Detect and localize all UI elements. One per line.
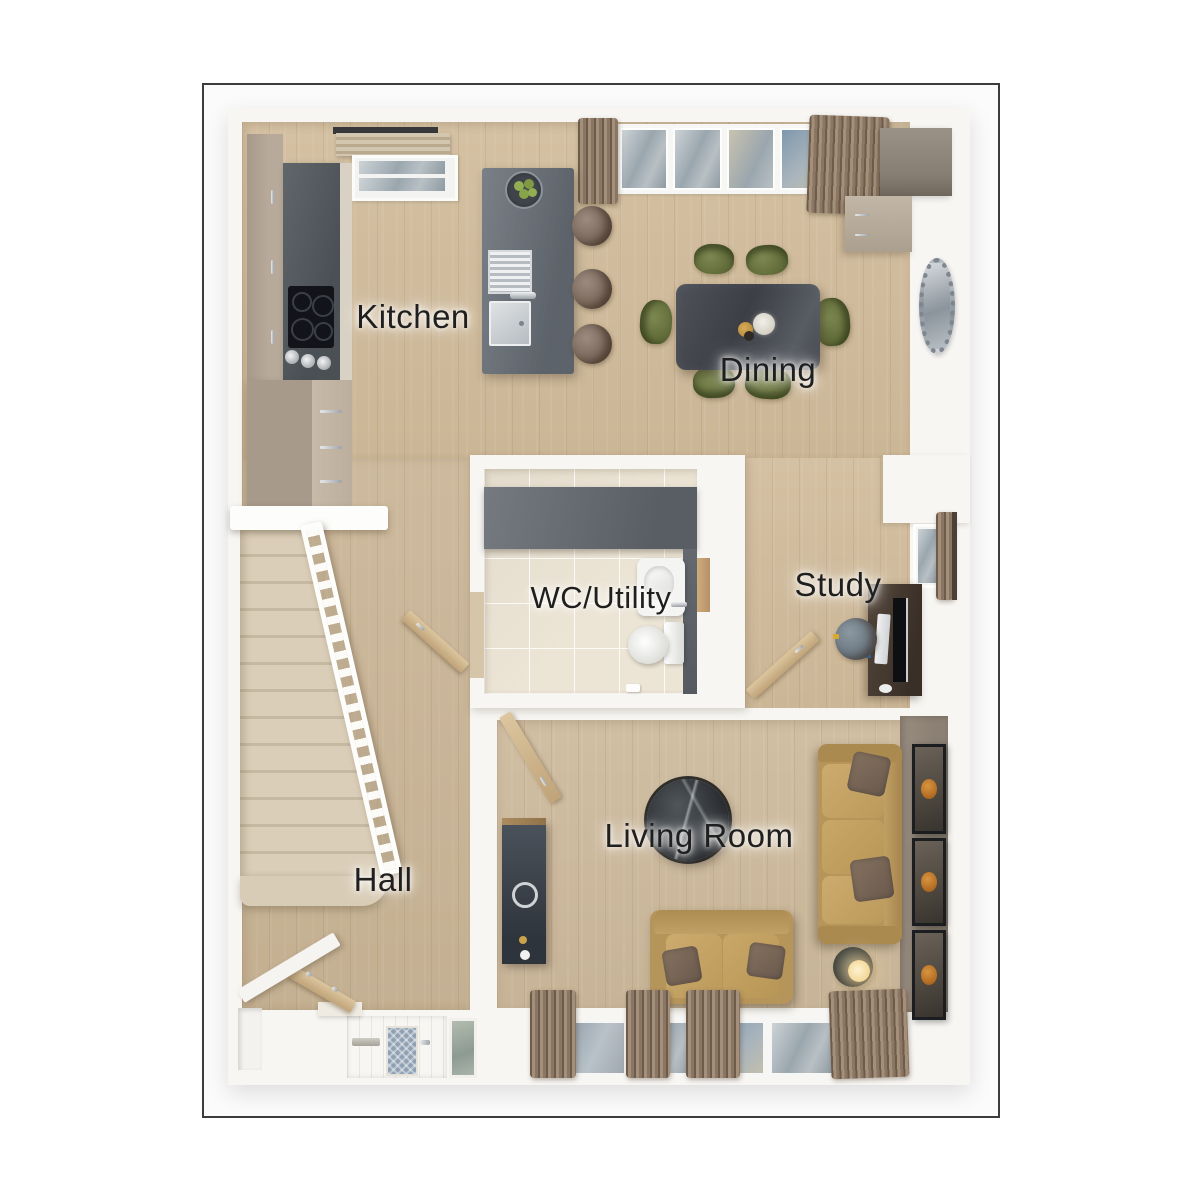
curtain-panel (530, 990, 576, 1078)
door-pane (620, 128, 668, 190)
bar-stool (572, 269, 612, 309)
sofa-arm (818, 926, 902, 944)
drain (519, 321, 524, 326)
picture-frame (912, 744, 946, 834)
kitchen-tall-cabinets (247, 134, 283, 380)
flower-centerpiece (753, 313, 775, 335)
room-label-kitchen: Kitchen (356, 298, 470, 336)
mouse (879, 684, 892, 693)
room-label-study: Study (795, 566, 882, 604)
canister (301, 354, 315, 368)
sink-basin (489, 301, 531, 346)
fruit-bowl (505, 171, 543, 209)
sidelight-window (449, 1018, 477, 1078)
apple (528, 188, 537, 197)
door-handle (416, 622, 425, 631)
drawer-handle (320, 480, 342, 483)
window-pane (359, 178, 445, 191)
monitor (893, 598, 908, 682)
door-pane (727, 128, 775, 190)
cabinet-handle (855, 214, 869, 216)
throw-pillow (846, 750, 891, 797)
door-handle (794, 644, 803, 653)
cabinet-handle (855, 234, 869, 236)
drawer-handle (320, 410, 342, 413)
wall-mirror (919, 258, 955, 354)
cabinet-handle (271, 260, 274, 274)
sofa-back (654, 910, 789, 934)
kitchen-drawers (312, 380, 352, 508)
curtain-panel (828, 989, 909, 1080)
picture-frame (912, 930, 946, 1020)
window-pane (918, 529, 936, 583)
room-label-living: Living Room (605, 817, 794, 855)
burner (314, 322, 333, 341)
curtain-panel (578, 118, 618, 204)
basin-tap (671, 602, 687, 607)
cup (744, 331, 754, 341)
three-seat-sofa (818, 744, 902, 944)
wall-cabinet (880, 128, 952, 196)
window-pane (359, 161, 445, 174)
letterbox (352, 1038, 380, 1046)
artwork (921, 965, 937, 985)
soap (626, 684, 640, 692)
drawer-handle (320, 446, 342, 449)
room-label-wc: WC/Utility (530, 580, 671, 616)
faucet (510, 292, 536, 299)
throw-pillow (849, 855, 894, 902)
floor-lamp (848, 960, 870, 982)
window-pane (772, 1023, 833, 1073)
dining-chair (639, 299, 673, 345)
curtain-panel (686, 990, 740, 1078)
kitchen-base-cabinets (247, 380, 312, 508)
picture-frame (912, 838, 946, 926)
wc-shelf (697, 558, 710, 612)
sideboard (845, 196, 912, 252)
dining-chair (745, 244, 789, 276)
cabinet-handle (271, 330, 274, 344)
room-label-hall: Hall (354, 861, 413, 899)
gold-knob (519, 936, 527, 944)
console-wood-edge (502, 818, 546, 825)
room-label-dining: Dining (720, 351, 817, 389)
floorplan-page: Kitchen Dining WC/Utility Study Hall Liv… (0, 0, 1200, 1200)
burner (291, 318, 314, 341)
desk-stool (835, 618, 877, 660)
throw-pillow (661, 945, 703, 987)
canister (285, 350, 299, 364)
door-glass-strip (386, 1026, 418, 1076)
door-handle (420, 1040, 430, 1045)
hob (288, 286, 334, 348)
canister (317, 356, 331, 370)
window-blind (336, 133, 450, 156)
curtain-pelmet (952, 512, 957, 600)
toilet-bowl (628, 626, 668, 664)
dining-chair (693, 243, 734, 274)
wc-doorway (470, 592, 484, 678)
wc-worktop (484, 487, 697, 549)
bar-stool (572, 206, 612, 246)
kitchen-window (352, 155, 458, 201)
white-knob (520, 950, 530, 960)
sink-drainer (488, 250, 532, 294)
throw-pillow (746, 942, 786, 981)
bar-stool (572, 324, 612, 364)
burner (312, 295, 334, 317)
front-door (347, 1016, 447, 1078)
wc-wall-panel (683, 549, 697, 694)
tv-console (502, 822, 546, 964)
burner (292, 292, 312, 312)
stool-tag (833, 634, 839, 639)
artwork (921, 779, 937, 799)
wall-niche (238, 1008, 262, 1070)
cabinet-handle (271, 190, 274, 204)
speaker-ring (512, 882, 538, 908)
artwork (921, 872, 937, 892)
curtain-panel (626, 990, 670, 1078)
door-pane (673, 128, 721, 190)
counter-edge (340, 163, 352, 380)
door-handle (540, 776, 548, 786)
